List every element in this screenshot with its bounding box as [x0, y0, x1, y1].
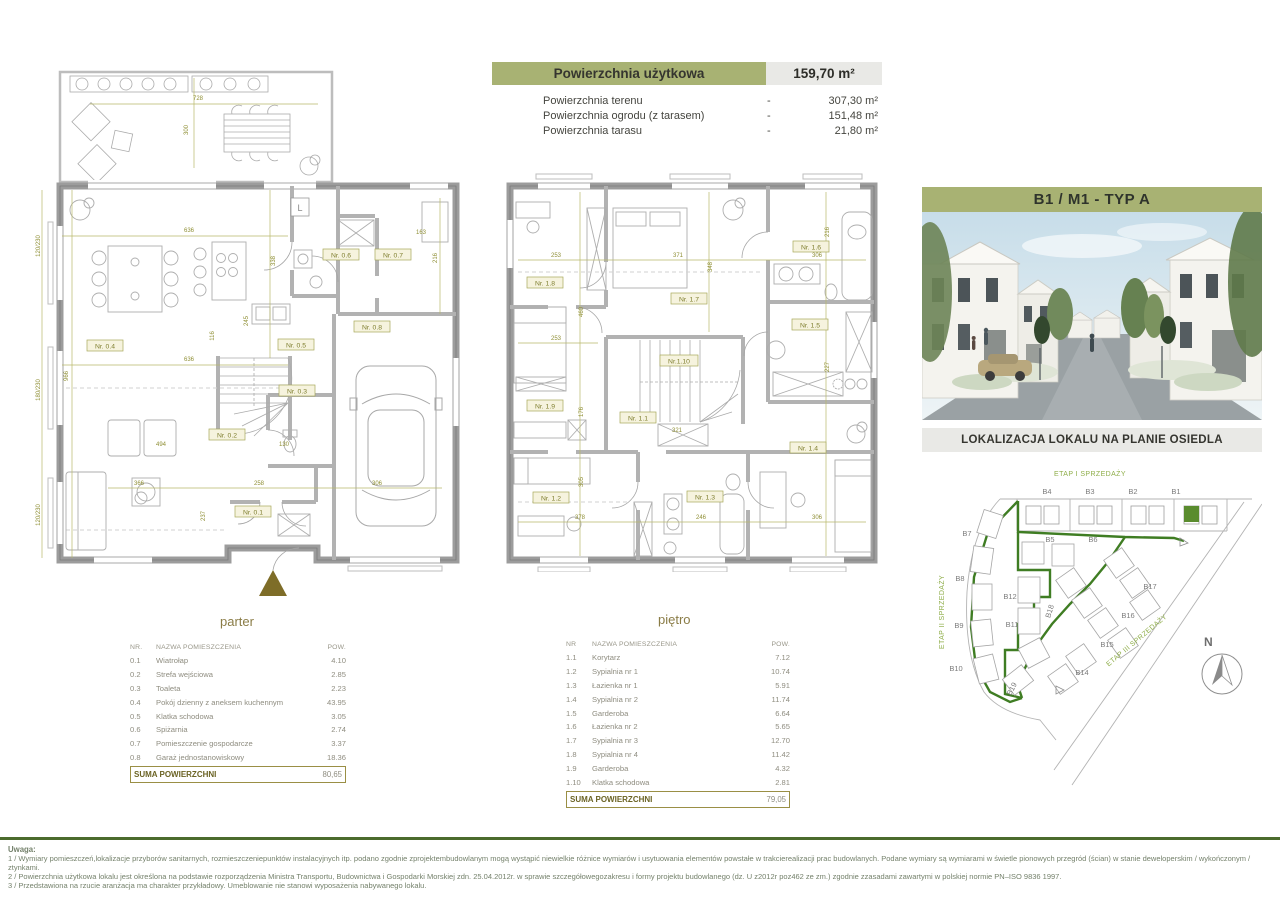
summary-row-label: Powierzchnia terenu	[543, 95, 767, 107]
svg-text:116: 116	[210, 331, 216, 341]
parter-title: parter	[220, 614, 254, 629]
svg-text:L: L	[297, 203, 302, 213]
terrace	[60, 72, 332, 183]
svg-text:B10: B10	[949, 664, 962, 673]
room-label: Nr. 1.6	[801, 245, 821, 252]
stage2-label: ETAP II SPRZEDAŻY	[937, 575, 946, 649]
svg-text:306: 306	[372, 481, 383, 487]
summary-row-value: 21,80 m²	[783, 125, 882, 137]
svg-text:163: 163	[416, 230, 427, 236]
svg-text:B11: B11	[1006, 620, 1019, 629]
notes-title: Uwaga:	[8, 845, 1272, 854]
room-label: Nr. 1.1	[628, 416, 648, 423]
svg-text:B3: B3	[1085, 487, 1094, 496]
svg-text:B8: B8	[955, 574, 964, 583]
table-row: 1.2Sypialnia nr 110.74	[566, 665, 790, 679]
svg-text:306: 306	[812, 515, 823, 521]
parter-room-table: NR. NAZWA POMIESZCZENIA POW. 0.1Wiatroła…	[130, 641, 346, 783]
sum-value: 79,05	[766, 795, 786, 804]
col-nr: NR	[566, 641, 592, 648]
svg-text:253: 253	[551, 253, 562, 259]
svg-text:460: 460	[579, 306, 585, 317]
room-label: Nr. 0.2	[217, 433, 237, 440]
sum-label: SUMA POWIERZCHNI	[134, 770, 322, 779]
svg-text:B7: B7	[962, 529, 971, 538]
svg-text:B1: B1	[1171, 487, 1180, 496]
table-row: 1.7Sypialnia nr 312.70	[566, 734, 790, 748]
table-row: 0.8Garaż jednostanowiskowy18.36	[130, 751, 346, 765]
highlighted-lot-b1	[1184, 506, 1199, 522]
note-1: 1 / Wymiary pomieszczeń,lokalizacje przy…	[8, 854, 1272, 872]
table-row: 1.4Sypialnia nr 211.74	[566, 692, 790, 706]
table-row: 1.6Łazienka nr 25.65	[566, 720, 790, 734]
summary-row-dash: -	[767, 125, 783, 137]
table-row: 0.3Toaleta2.23	[130, 682, 346, 696]
svg-text:176: 176	[579, 406, 585, 417]
north-compass-icon: N	[1202, 635, 1242, 694]
svg-text:378: 378	[575, 515, 586, 521]
room-label: Nr. 0.7	[383, 253, 403, 260]
area-summary: Powierzchnia użytkowa 159,70 m² Powierzc…	[492, 62, 882, 138]
svg-text:258: 258	[254, 481, 265, 487]
table-row: 1.3Łazienka nr 15.91	[566, 679, 790, 693]
svg-text:B16: B16	[1121, 611, 1134, 620]
fridge-box: L	[291, 198, 309, 216]
summary-row: Powierzchnia ogrodu (z tarasem) - 151,48…	[492, 108, 882, 123]
svg-text:253: 253	[551, 336, 562, 342]
svg-text:B14: B14	[1075, 668, 1088, 677]
sum-value: 80,65	[322, 770, 342, 779]
svg-text:636: 636	[184, 228, 195, 234]
svg-text:B5: B5	[1045, 535, 1054, 544]
table-row: 0.2Strefa wejściowa2.85	[130, 668, 346, 682]
svg-text:348: 348	[708, 261, 714, 272]
col-name: NAZWA POMIESZCZENIA	[592, 641, 756, 648]
table-row: 1.8Sypialnia nr 411.42	[566, 748, 790, 762]
svg-text:B18: B18	[1043, 603, 1056, 618]
room-label: Nr. 1.9	[535, 404, 555, 411]
room-label: Nr. 1.4	[798, 446, 818, 453]
svg-text:B9: B9	[954, 621, 963, 630]
room-label: Nr.1.10	[668, 359, 690, 366]
footer-notes: Uwaga: 1 / Wymiary pomieszczeń,lokalizac…	[8, 845, 1272, 890]
table-row: 1.9Garderoba4.32	[566, 761, 790, 775]
svg-text:120/230: 120/230	[36, 504, 42, 526]
svg-text:371: 371	[673, 253, 684, 259]
svg-text:B15: B15	[1100, 640, 1113, 649]
sum-row: SUMA POWIERZCHNI 80,65	[130, 766, 346, 783]
pietro-floor-plan: 253 371 348 306 216 460 176 253 321 378 …	[488, 172, 888, 572]
north-label: N	[1204, 635, 1213, 649]
svg-text:B4: B4	[1042, 487, 1051, 496]
usable-area-label: Powierzchnia użytkowa	[492, 62, 766, 85]
summary-row: Powierzchnia terenu - 307,30 m²	[492, 93, 882, 108]
footer-rule	[0, 837, 1280, 840]
svg-text:216: 216	[825, 226, 831, 237]
svg-text:306: 306	[812, 253, 823, 259]
estate-render-photo	[922, 212, 1262, 420]
pietro-room-table: NR NAZWA POMIESZCZENIA POW. 1.1Korytarz7…	[566, 638, 790, 808]
entrance-arrow-icon	[259, 570, 287, 596]
room-label: Nr. 0.3	[287, 389, 307, 396]
table-row: 0.1Wiatrołap4.10	[130, 654, 346, 668]
room-label: Nr. 0.1	[243, 510, 263, 517]
svg-text:636: 636	[184, 357, 195, 363]
brochure-page: Powierzchnia użytkowa 159,70 m² Powierzc…	[0, 0, 1280, 904]
room-label: Nr. 1.8	[535, 281, 555, 288]
svg-text:494: 494	[156, 442, 167, 448]
room-label: Nr. 1.7	[679, 297, 699, 304]
room-label: Nr. 0.8	[362, 325, 382, 332]
note-2: 2 / Powierzchnia użytkowa lokalu jest ok…	[8, 872, 1272, 881]
room-label: Nr. 1.3	[695, 495, 715, 502]
col-pow: POW.	[312, 644, 346, 651]
estate-site-plan: ETAP I SPRZEDAŻY ETAP II SPRZEDAŻY ETAP …	[922, 452, 1262, 787]
summary-row-value: 151,48 m²	[783, 110, 882, 122]
svg-text:227: 227	[825, 361, 831, 372]
svg-text:728: 728	[193, 96, 204, 102]
room-label: Nr. 1.2	[541, 496, 561, 503]
summary-row-label: Powierzchnia ogrodu (z tarasem)	[543, 110, 767, 122]
svg-text:300: 300	[184, 124, 190, 135]
summary-row-dash: -	[767, 95, 783, 107]
room-label: Nr. 1.5	[800, 323, 820, 330]
svg-text:366: 366	[134, 481, 145, 487]
svg-text:216: 216	[433, 252, 439, 263]
svg-text:246: 246	[696, 515, 707, 521]
summary-row-label: Powierzchnia tarasu	[543, 125, 767, 137]
location-caption: LOKALIZACJA LOKALU NA PLANIE OSIEDLA	[922, 428, 1262, 452]
summary-row-dash: -	[767, 110, 783, 122]
sum-label: SUMA POWIERZCHNI	[570, 795, 766, 804]
svg-text:321: 321	[672, 428, 683, 434]
svg-text:B2: B2	[1128, 487, 1137, 496]
unit-type-header: B1 / M1 - TYP A	[922, 187, 1262, 212]
table-row: 0.4Pokój dzienny z aneksem kuchennym43.9…	[130, 695, 346, 709]
table-row: 0.6Spiżarnia2.74	[130, 723, 346, 737]
svg-text:338: 338	[271, 255, 277, 266]
table-row: 0.7Pomieszczenie gospodarcze3.37	[130, 737, 346, 751]
col-nr: NR.	[130, 644, 156, 651]
site-lots-middle	[1048, 548, 1161, 695]
col-name: NAZWA POMIESZCZENIA	[156, 644, 312, 651]
sum-row: SUMA POWIERZCHNI 79,05	[566, 791, 790, 808]
note-3: 3 / Przedstawiona na rzucie aranżacja ma…	[8, 881, 1272, 890]
pietro-title: piętro	[658, 612, 691, 627]
room-label: Nr. 0.4	[95, 344, 115, 351]
usable-area-value: 159,70 m²	[766, 62, 882, 85]
table-row: 1.10Klatka schodowa2.81	[566, 775, 790, 789]
svg-text:B17: B17	[1143, 582, 1156, 591]
svg-text:B6: B6	[1088, 535, 1097, 544]
svg-text:966: 966	[64, 370, 70, 381]
svg-text:237: 237	[201, 510, 207, 521]
svg-text:245: 245	[244, 315, 250, 326]
room-label: Nr. 0.5	[286, 343, 306, 350]
table-row: 1.5Garderoba6.64	[566, 706, 790, 720]
summary-row: Powierzchnia tarasu - 21,80 m²	[492, 123, 882, 138]
svg-text:130: 130	[279, 442, 290, 448]
svg-text:B12: B12	[1003, 592, 1016, 601]
table-row: 1.1Korytarz7.12	[566, 651, 790, 665]
summary-row-value: 307,30 m²	[783, 95, 882, 107]
table-row: 0.5Klatka schodowa3.05	[130, 709, 346, 723]
svg-text:305: 305	[579, 476, 585, 487]
room-label: Nr. 0.6	[331, 253, 351, 260]
parter-floor-plan: 728 300 636 338 163 216 245 116 966 636 …	[28, 58, 468, 608]
svg-text:180/230: 180/230	[36, 379, 42, 401]
svg-text:120/230: 120/230	[36, 235, 42, 257]
stage1-label: ETAP I SPRZEDAŻY	[1054, 469, 1126, 478]
col-pow: POW.	[756, 641, 790, 648]
